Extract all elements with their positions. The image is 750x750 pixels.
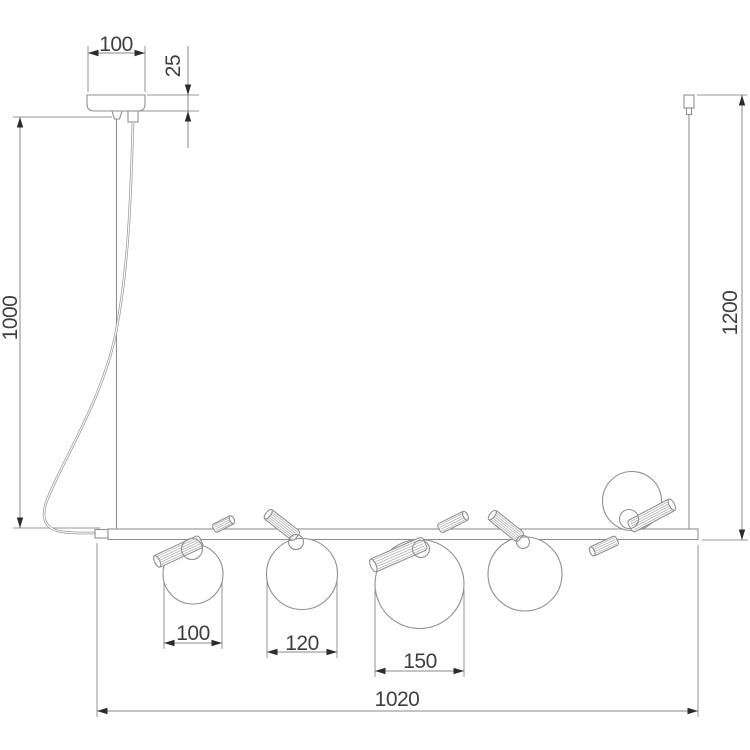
arrowhead	[97, 708, 108, 714]
dim-canopy-width: 100	[88, 33, 145, 92]
arrowhead	[17, 117, 23, 128]
arrowhead	[375, 668, 386, 674]
dimension-drawing-canvas: 100 25 1000 1200 1020	[0, 0, 750, 750]
dim-drop-left: 1000	[0, 117, 112, 528]
ceiling-canopy	[87, 95, 145, 111]
dim-drop-right-label: 1200	[719, 291, 742, 336]
canopy-cable-gland	[112, 111, 122, 119]
dim-bar-length-label: 1020	[375, 688, 420, 711]
arrowhead	[267, 649, 278, 655]
arrowhead	[212, 640, 223, 646]
canopy-wire-grip	[128, 111, 138, 122]
arrowhead	[185, 111, 191, 122]
arrowhead	[164, 640, 175, 646]
arrowhead	[88, 50, 99, 56]
dim-globe-2-label: 120	[285, 632, 319, 655]
arrowhead	[688, 708, 699, 714]
dim-globe-3-label: 150	[403, 650, 437, 673]
dim-drop-right: 1200	[697, 95, 748, 540]
arrowhead	[17, 518, 23, 529]
dim-canopy-height: 25	[139, 46, 199, 148]
arrowhead	[739, 95, 745, 106]
pendant-light-drawing: 100 25 1000 1200 1020	[0, 0, 750, 750]
dim-globe-1-label: 100	[176, 622, 210, 645]
glass-globe-2	[267, 539, 338, 610]
arrowhead	[135, 50, 146, 56]
ceiling-anchor-right	[684, 95, 694, 115]
arrowhead	[454, 668, 465, 674]
power-cable	[44, 122, 133, 533]
arrowhead	[327, 649, 338, 655]
arrowhead	[185, 85, 191, 96]
arrowhead	[739, 530, 745, 541]
dim-canopy-width-label: 100	[99, 33, 133, 56]
cable-plug	[95, 530, 108, 539]
dim-canopy-height-label: 25	[162, 55, 185, 77]
dim-drop-left-label: 1000	[0, 296, 22, 341]
